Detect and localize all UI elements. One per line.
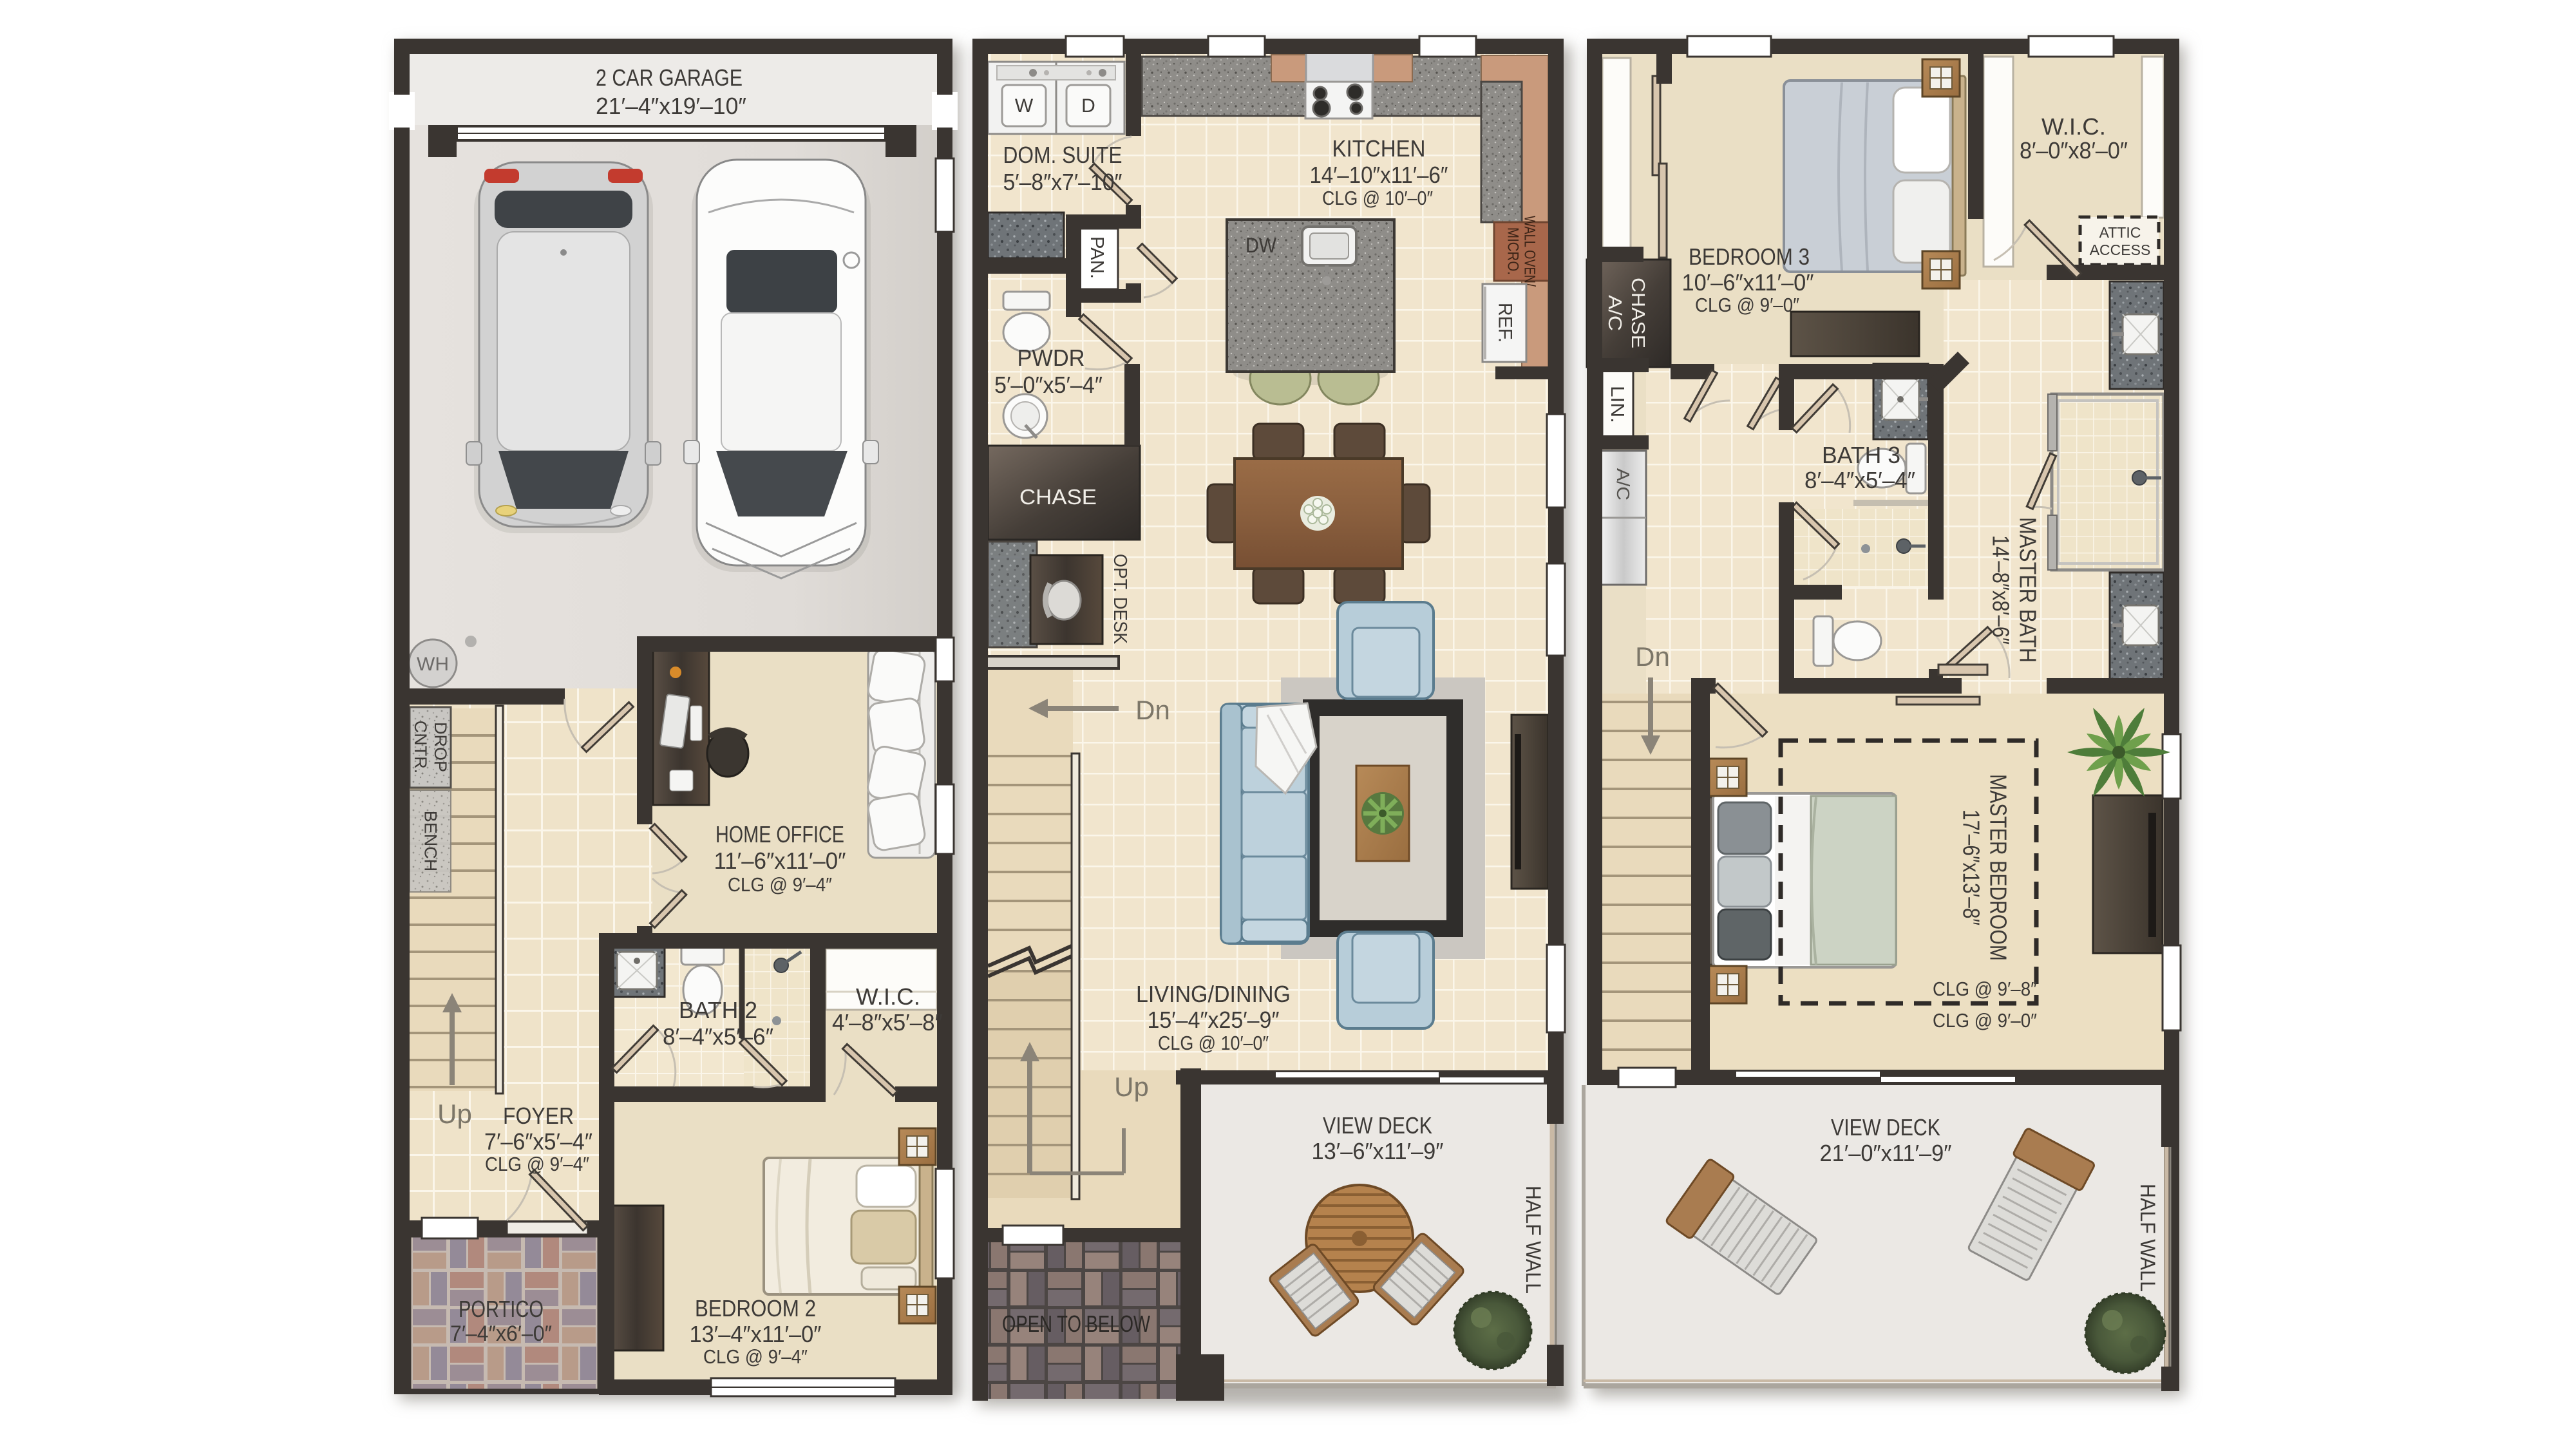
svg-text:7′–4″x6′–0″: 7′–4″x6′–0″ — [450, 1321, 552, 1346]
svg-text:Dn: Dn — [1635, 641, 1670, 672]
svg-text:13′–4″x11′–0″: 13′–4″x11′–0″ — [690, 1321, 822, 1347]
svg-text:CLG @ 9′–4″: CLG @ 9′–4″ — [703, 1345, 808, 1368]
svg-text:D: D — [1081, 95, 1095, 117]
svg-text:Up: Up — [437, 1099, 472, 1129]
svg-text:W: W — [1015, 95, 1034, 117]
svg-text:DROP: DROP — [431, 722, 450, 772]
svg-text:CHASE: CHASE — [1627, 278, 1648, 348]
svg-text:MASTER BATH: MASTER BATH — [2014, 517, 2041, 663]
svg-text:W.I.C.: W.I.C. — [856, 983, 920, 1010]
svg-text:VIEW DECK: VIEW DECK — [1323, 1112, 1432, 1139]
svg-text:WH: WH — [417, 654, 449, 675]
svg-text:13′–6″x11′–9″: 13′–6″x11′–9″ — [1312, 1138, 1444, 1164]
svg-text:11′–6″x11′–0″: 11′–6″x11′–0″ — [714, 848, 846, 874]
svg-text:15′–4″x25′–9″: 15′–4″x25′–9″ — [1148, 1007, 1280, 1033]
svg-text:BATH 3: BATH 3 — [1822, 442, 1900, 468]
svg-text:CLG @ 10′–0″: CLG @ 10′–0″ — [1158, 1032, 1269, 1054]
svg-text:8′–0″x8′–0″: 8′–0″x8′–0″ — [2020, 137, 2128, 164]
svg-text:Up: Up — [1114, 1072, 1149, 1102]
svg-text:HOME OFFICE: HOME OFFICE — [715, 821, 844, 848]
svg-text:CLG @ 9′–4″: CLG @ 9′–4″ — [485, 1153, 589, 1175]
svg-text:PWDR: PWDR — [1018, 345, 1085, 371]
svg-text:8′–4″x5′–6″: 8′–4″x5′–6″ — [663, 1023, 773, 1050]
svg-text:21′–4″x19′–10″: 21′–4″x19′–10″ — [596, 93, 746, 119]
svg-text:KITCHEN: KITCHEN — [1332, 135, 1426, 162]
svg-text:Dn: Dn — [1135, 695, 1170, 725]
svg-text:REF.: REF. — [1495, 303, 1516, 343]
svg-text:A/C: A/C — [1613, 468, 1633, 500]
svg-text:5′–0″x5′–4″: 5′–0″x5′–4″ — [994, 372, 1103, 398]
svg-text:21′–0″x11′–9″: 21′–0″x11′–9″ — [1820, 1140, 1952, 1166]
svg-text:BENCH: BENCH — [421, 811, 440, 872]
svg-text:MASTER BEDROOM: MASTER BEDROOM — [1985, 774, 2011, 961]
svg-text:CLG @ 9′–4″: CLG @ 9′–4″ — [728, 873, 832, 896]
svg-text:PORTICO: PORTICO — [459, 1296, 544, 1322]
svg-text:FOYER: FOYER — [503, 1103, 574, 1129]
svg-text:5′–8″x7′–10″: 5′–8″x7′–10″ — [1003, 169, 1122, 195]
svg-text:CNTR.: CNTR. — [411, 721, 430, 774]
svg-text:A/C: A/C — [1604, 295, 1625, 331]
svg-text:MICRO.: MICRO. — [1504, 227, 1522, 275]
svg-text:PAN.: PAN. — [1086, 236, 1107, 279]
svg-text:VIEW DECK: VIEW DECK — [1831, 1114, 1940, 1141]
svg-text:17′–6″x13′–8″: 17′–6″x13′–8″ — [1958, 810, 1984, 925]
svg-text:14′–8″x8′–6″: 14′–8″x8′–6″ — [1987, 535, 2014, 645]
svg-text:DW: DW — [1245, 234, 1277, 257]
svg-text:CHASE: CHASE — [1019, 485, 1097, 509]
svg-text:BATH 2: BATH 2 — [679, 997, 757, 1023]
svg-text:W.I.C.: W.I.C. — [2041, 113, 2106, 140]
svg-text:CLG @ 10′–0″: CLG @ 10′–0″ — [1322, 187, 1433, 209]
svg-text:HALF WALL: HALF WALL — [1522, 1186, 1545, 1294]
svg-text:OPT. DESK: OPT. DESK — [1110, 554, 1130, 645]
svg-text:CLG @ 9′–0″: CLG @ 9′–0″ — [1695, 294, 1799, 316]
svg-text:ACCESS: ACCESS — [2090, 241, 2151, 258]
svg-text:10′–6″x11′–0″: 10′–6″x11′–0″ — [1682, 269, 1814, 296]
svg-text:CLG @ 9′–0″: CLG @ 9′–0″ — [1933, 1009, 2037, 1032]
svg-text:14′–10″x11′–6″: 14′–10″x11′–6″ — [1310, 162, 1448, 188]
svg-text:2 CAR GARAGE: 2 CAR GARAGE — [596, 64, 743, 91]
svg-text:OPEN TO BELOW: OPEN TO BELOW — [1002, 1311, 1150, 1337]
svg-text:8′–4″x5′–4″: 8′–4″x5′–4″ — [1804, 467, 1915, 493]
svg-text:4′–8″x5′–8″: 4′–8″x5′–8″ — [832, 1009, 943, 1036]
svg-text:BEDROOM 3: BEDROOM 3 — [1689, 243, 1810, 270]
svg-text:DOM. SUITE: DOM. SUITE — [1003, 142, 1122, 168]
svg-text:7′–6″x5′–4″: 7′–6″x5′–4″ — [484, 1128, 592, 1155]
svg-text:CLG @ 9′–8″: CLG @ 9′–8″ — [1933, 978, 2037, 1000]
svg-text:BEDROOM 2: BEDROOM 2 — [695, 1295, 816, 1321]
svg-text:ATTIC: ATTIC — [2099, 224, 2141, 241]
svg-text:WALL OVEN/: WALL OVEN/ — [1521, 216, 1539, 287]
svg-text:LIVING/DINING: LIVING/DINING — [1136, 981, 1291, 1007]
svg-text:LIN.: LIN. — [1607, 386, 1627, 423]
svg-text:HALF WALL: HALF WALL — [2136, 1184, 2159, 1292]
